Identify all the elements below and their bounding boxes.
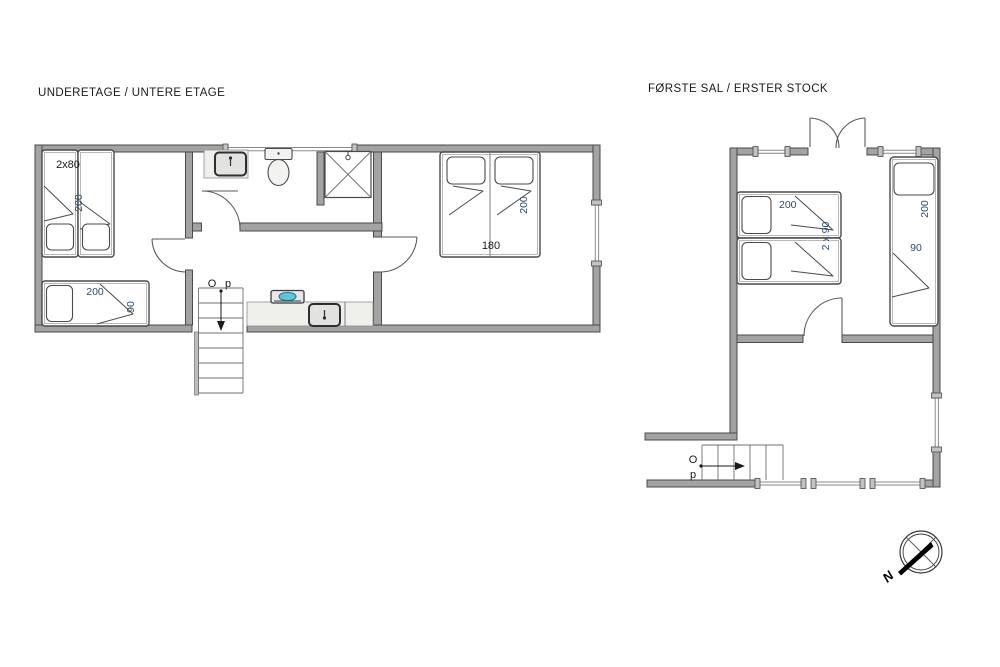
first-floor-twin-width-label: 2 x 90 — [820, 222, 832, 251]
twin-beds-length-label: 200 — [73, 194, 85, 212]
wall-segment — [240, 223, 382, 231]
window — [755, 479, 806, 489]
window — [811, 479, 865, 489]
floor-plan-drawing: UNDERETAGE / UNTERE ETAGE FØRSTE SAL / E… — [0, 0, 1000, 667]
wall-segment — [730, 148, 737, 440]
window — [753, 147, 790, 157]
stairs-direction-arrow — [699, 462, 745, 470]
wall-segment — [193, 223, 202, 231]
toilet-icon — [265, 149, 292, 186]
shower-icon — [325, 152, 371, 198]
first-floor-single-width-label: 90 — [910, 242, 922, 254]
window — [878, 147, 921, 157]
kitchen-sink-icon — [309, 304, 340, 326]
window — [932, 393, 942, 452]
wall-segment — [593, 262, 600, 332]
wall-segment — [317, 152, 324, 205]
door-left-bedroom — [152, 239, 186, 272]
stairs-direction-arrow — [217, 289, 225, 331]
door-right-bedroom — [380, 237, 417, 272]
stairs-up-label-p: p — [225, 278, 231, 290]
stair-side-wall — [195, 332, 199, 395]
double-bed-length-label: 200 — [518, 196, 530, 214]
ground-floor-stairs: O p — [195, 278, 244, 395]
double-entry-door — [810, 118, 865, 148]
hob-icon — [271, 291, 304, 304]
double-bed-width-label: 180 — [482, 240, 500, 252]
ground-floor-plan: O p 2x80 200 200 90 — [35, 144, 602, 395]
sink-icon — [215, 153, 246, 176]
wall-segment — [737, 335, 803, 343]
stairs-up-label-o: O — [689, 454, 698, 466]
ground-floor-title: UNDERETAGE / UNTERE ETAGE — [38, 87, 225, 99]
wall-segment — [186, 152, 193, 238]
wall-segment — [186, 270, 193, 325]
wall-segment — [352, 145, 600, 152]
twin-beds-width-label: 2x80 — [56, 159, 80, 171]
wall-segment — [842, 335, 933, 343]
door-first-floor-bedroom — [804, 298, 842, 336]
first-floor-stairs: O p — [689, 445, 783, 481]
kitchen — [247, 291, 373, 327]
first-floor-twin-length-label: 200 — [779, 199, 797, 211]
stairs-up-label-p: p — [690, 469, 696, 481]
stairs-up-label-o: O — [208, 278, 217, 290]
window — [592, 200, 602, 266]
compass-icon: N — [879, 531, 942, 585]
first-floor-plan: 200 2 x 90 200 90 O p — [645, 118, 942, 489]
wall-segment — [35, 145, 42, 332]
window — [870, 479, 925, 489]
first-floor-title: FØRSTE SAL / ERSTER STOCK — [648, 83, 828, 95]
floor-plan-page: UNDERETAGE / UNTERE ETAGE FØRSTE SAL / E… — [0, 0, 1000, 667]
single-bed-length-label: 200 — [86, 286, 104, 298]
wall-segment — [647, 480, 757, 487]
bathroom-fixtures — [204, 149, 371, 198]
door-bathroom — [202, 191, 240, 229]
wall-segment — [645, 433, 737, 440]
wall-segment — [593, 145, 600, 205]
wall-segment — [933, 448, 940, 487]
wall-segment — [374, 272, 382, 325]
compass-north-label: N — [879, 568, 896, 586]
single-bed-width-label: 90 — [125, 301, 137, 313]
first-floor-single-length-label: 200 — [919, 200, 931, 218]
